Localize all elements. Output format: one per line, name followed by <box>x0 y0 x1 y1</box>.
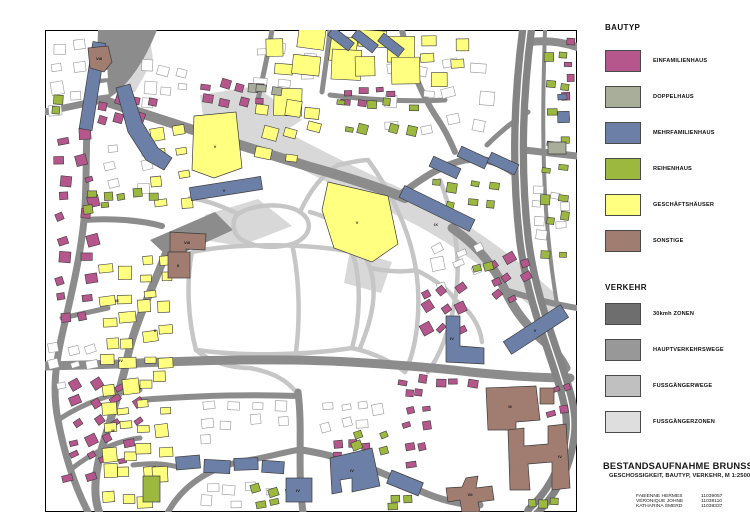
map-parcel <box>203 401 215 410</box>
map-building <box>118 467 129 477</box>
legend-label: DOPPELHAUS <box>653 94 694 100</box>
map-building <box>122 378 140 395</box>
map-building <box>219 98 230 107</box>
map-building <box>149 193 158 200</box>
city-map: VVIXVVIIIIIVIVIVIVIIIIVVIIVIIIIIIIVIIIII <box>45 30 577 512</box>
map-building <box>200 84 210 90</box>
map-building <box>558 195 568 202</box>
map-parcel <box>536 230 548 240</box>
map-building <box>102 491 115 503</box>
legend-label: SONSTIGE <box>653 238 684 244</box>
map-building <box>102 384 115 396</box>
title-block: BESTANDSAUFNAHME BRUNSSUM GESCHOSSIGKEIT… <box>603 461 748 479</box>
legend-swatch <box>605 50 641 72</box>
map-building <box>546 80 556 88</box>
legend-swatch <box>605 230 641 252</box>
map-building-landmark <box>175 455 200 470</box>
map-building <box>119 311 137 323</box>
map-parcel <box>47 342 58 353</box>
map-parcel <box>70 91 81 100</box>
map-building <box>85 273 98 284</box>
map-parcel <box>144 81 157 95</box>
map-parcel <box>556 221 567 228</box>
map-building <box>83 204 93 214</box>
map-building <box>486 200 494 208</box>
legend-label: REIHENHAUS <box>653 166 692 172</box>
map-building <box>274 63 293 75</box>
map-building <box>383 98 391 106</box>
map-building <box>540 195 550 205</box>
map-parcel <box>208 484 219 492</box>
floor-label: IV <box>296 488 300 493</box>
map-building <box>285 99 303 117</box>
map-building <box>409 105 418 111</box>
map-building <box>144 290 156 298</box>
map-building <box>285 154 297 162</box>
map-building <box>404 495 413 503</box>
map-building <box>77 312 86 321</box>
map-parcel <box>470 63 486 73</box>
map-parcel <box>178 83 187 89</box>
map-building <box>159 325 173 335</box>
map-building <box>422 406 430 411</box>
map-building <box>418 442 426 451</box>
credit-name: KATHARINA SMERD <box>636 504 701 509</box>
map-building <box>406 390 414 397</box>
map-building <box>468 379 479 388</box>
legend-label: 30kmh ZONEN <box>653 311 694 317</box>
credits: FABIENNE HERMES11039057VÉRONIQUE JOHNE11… <box>636 494 731 509</box>
map-building <box>292 54 321 76</box>
map-building <box>102 447 117 463</box>
map-building <box>123 495 135 504</box>
map-building <box>98 102 107 111</box>
map-parcel <box>108 145 118 153</box>
map-building <box>160 407 170 414</box>
map-parcel <box>231 501 241 508</box>
floor-label: IV <box>558 454 562 459</box>
map-parcel <box>532 200 541 207</box>
map-parcel <box>356 420 368 429</box>
map-building <box>436 379 446 387</box>
map-building <box>560 211 569 220</box>
map-building <box>344 90 352 96</box>
map-building <box>157 301 169 313</box>
map-building <box>544 53 554 62</box>
map-building <box>255 104 268 115</box>
map-building <box>559 164 569 170</box>
map-parcel <box>424 91 435 98</box>
floor-label: IV <box>350 468 354 473</box>
legend-swatch <box>605 411 641 433</box>
legend-heading-bautyp: BAUTYP <box>605 23 640 32</box>
map-building <box>137 399 148 407</box>
map-parcel <box>141 59 152 71</box>
map-building <box>99 295 116 306</box>
credit-row: KATHARINA SMERD11038337 <box>636 504 731 509</box>
map-parcel <box>278 416 288 425</box>
map-parcel <box>253 403 263 410</box>
map-building <box>137 299 150 312</box>
map-building <box>391 57 420 84</box>
map-building <box>567 38 575 45</box>
map-building <box>61 313 71 323</box>
map-building <box>104 463 118 477</box>
floor-label: V <box>534 328 537 333</box>
map-building <box>297 30 326 50</box>
map-parcel <box>342 404 352 411</box>
map-building <box>137 425 149 432</box>
map-building-landmark <box>548 142 566 154</box>
legend-label: EINFAMILIENHAUS <box>653 58 707 64</box>
map-parcel <box>47 358 59 369</box>
map-building <box>235 83 245 92</box>
map-building <box>406 125 417 136</box>
map-building-landmark <box>143 476 160 502</box>
map-building <box>542 168 551 174</box>
legend-heading-verkehr: VERKEHR <box>605 283 647 292</box>
map-parcel <box>323 402 334 409</box>
map-building <box>559 405 568 413</box>
map-parcel <box>534 216 544 226</box>
map-building <box>337 100 345 105</box>
floor-label: II <box>154 328 156 333</box>
map-building <box>256 98 264 104</box>
map-building <box>391 495 400 502</box>
map-building <box>150 176 161 187</box>
legend-label: FUSSGÄNGERWEGE <box>653 383 712 389</box>
map-parcel <box>222 485 235 495</box>
map-building <box>117 193 125 200</box>
map-building <box>159 447 173 457</box>
map-building <box>266 39 283 57</box>
floor-label: III <box>115 298 118 303</box>
map-building <box>143 256 153 265</box>
map-parcel <box>250 414 261 425</box>
map-building <box>120 339 132 349</box>
map-building <box>406 406 414 414</box>
legend-label: GESCHÄFTSHÄUSER <box>653 202 714 208</box>
legend-swatch <box>605 375 641 397</box>
map-building <box>59 251 71 263</box>
map-building <box>406 461 417 468</box>
floor-label: V <box>214 144 217 149</box>
legend-swatch <box>605 86 641 108</box>
map-building <box>334 440 343 448</box>
map-building <box>158 358 173 369</box>
legend-swatch <box>605 303 641 325</box>
floor-label: VIII <box>184 240 190 245</box>
map-parcel <box>220 421 231 429</box>
map-building <box>414 389 422 396</box>
map-parcel <box>358 401 368 409</box>
floor-label: IV <box>119 358 123 363</box>
map-building <box>117 295 131 304</box>
map-building <box>124 452 136 461</box>
map-building <box>388 503 398 510</box>
legend-label: HAUPTVERKEHRSWEGE <box>653 347 724 353</box>
map-building <box>120 421 132 429</box>
map-building <box>104 192 113 201</box>
map-building <box>420 53 434 62</box>
map-building <box>471 181 480 187</box>
map-building <box>359 88 368 94</box>
map-parcel <box>275 401 287 412</box>
map-building <box>154 423 168 437</box>
map-building <box>446 182 457 193</box>
map-building <box>387 91 395 97</box>
map-building-landmark <box>540 388 554 404</box>
map-building <box>81 253 92 261</box>
legend-label: MEHRFAMILIENHAUS <box>653 130 715 136</box>
map-building <box>98 264 113 274</box>
map-building <box>52 106 60 114</box>
map-building <box>140 275 151 282</box>
legend-swatch <box>605 158 641 180</box>
map-building <box>456 39 469 51</box>
map-building <box>75 154 88 167</box>
map-building <box>117 408 129 416</box>
map-building <box>136 443 151 454</box>
map-building <box>103 318 117 327</box>
map-parcel <box>73 39 85 50</box>
floor-label: III <box>508 404 511 409</box>
map-building <box>123 439 135 448</box>
map-building <box>560 252 567 257</box>
map-building <box>59 192 68 200</box>
map-building <box>405 442 415 450</box>
legend-label: FUSSGÄNGERZONEN <box>653 419 715 425</box>
map-building <box>82 294 93 301</box>
map-building <box>546 217 554 225</box>
map-building <box>541 251 551 259</box>
map-parcel <box>278 79 291 87</box>
map-building <box>153 371 165 382</box>
map-building-landmark <box>262 460 285 474</box>
map-building <box>118 266 131 279</box>
map-building <box>367 100 376 108</box>
map-title: BESTANDSAUFNAHME BRUNSSUM <box>603 461 748 471</box>
map-building <box>451 59 464 68</box>
map-building <box>148 98 157 107</box>
map-building <box>448 379 457 384</box>
map-building <box>539 500 548 508</box>
map-building <box>422 36 436 46</box>
map-building <box>558 94 567 100</box>
map-parcel <box>472 119 485 132</box>
map-building <box>256 501 267 509</box>
map-building <box>101 354 115 364</box>
map-building-landmark <box>192 112 242 178</box>
floor-label: V <box>223 188 226 193</box>
map-building <box>355 56 375 76</box>
map-building <box>431 73 447 87</box>
map-building <box>422 421 431 430</box>
map-parcel <box>430 256 445 271</box>
floor-label: VII <box>468 492 473 497</box>
map-parcel <box>479 91 495 106</box>
map-building-landmark <box>234 458 258 471</box>
city-map-svg: VVIXVVIIIIIVIVIVIVIIIIVVIIVIIIIIIIVIIIII <box>45 30 577 512</box>
map-building <box>547 109 557 116</box>
map-building <box>202 94 213 104</box>
map-building <box>468 199 478 206</box>
map-building <box>54 156 64 164</box>
map-building <box>101 202 109 208</box>
map-parcel <box>73 61 86 72</box>
floor-label: III <box>111 428 114 433</box>
map-parcel <box>533 186 543 194</box>
floor-label: IX <box>434 222 438 227</box>
map-parcel <box>160 87 171 95</box>
legend-swatch <box>605 339 641 361</box>
floor-label: VIII <box>96 56 102 61</box>
map-building <box>557 111 569 123</box>
map-building <box>376 87 383 92</box>
map-parcel <box>561 202 570 211</box>
map-building <box>272 87 283 96</box>
map-building <box>528 499 536 507</box>
map-building <box>432 179 440 185</box>
map-parcel <box>54 44 66 54</box>
map-building <box>418 374 427 383</box>
map-parcel <box>342 417 353 427</box>
map-building <box>172 124 185 135</box>
map-building <box>56 293 65 301</box>
map-building <box>145 357 156 363</box>
map-building <box>53 95 63 105</box>
map-building <box>345 127 353 133</box>
map-building <box>567 74 574 81</box>
map-building <box>133 188 142 197</box>
map-parcel <box>228 402 240 411</box>
map-parcel <box>50 81 65 96</box>
map-parcel <box>201 418 214 428</box>
map-building <box>178 170 190 179</box>
map-building <box>140 380 152 388</box>
map-building <box>256 84 267 92</box>
map-subtitle: GESCHOSSIGKEIT, BAUTYP, VERKEHR, M 1:250… <box>609 473 748 479</box>
map-building <box>561 83 570 90</box>
map-building-landmark <box>204 459 231 473</box>
floor-label: II <box>177 263 179 268</box>
map-building <box>358 100 367 107</box>
map-parcel <box>201 435 211 444</box>
map-building <box>357 123 369 135</box>
credit-id: 11038337 <box>701 504 731 509</box>
map-building <box>60 176 72 187</box>
map-parcel <box>371 403 384 415</box>
legend-swatch <box>605 122 641 144</box>
map-parcel <box>201 495 212 506</box>
map-building <box>304 107 320 119</box>
map-building <box>550 498 558 505</box>
map-building <box>102 402 118 415</box>
map-building <box>559 52 567 58</box>
map-building <box>88 191 97 197</box>
floor-label: V <box>356 220 359 225</box>
legend-swatch <box>605 194 641 216</box>
map-building <box>239 97 249 107</box>
map-building <box>388 123 399 134</box>
map-parcel <box>51 63 62 72</box>
map-building <box>564 62 571 67</box>
map-building <box>489 182 499 190</box>
map-building <box>107 338 119 349</box>
floor-label: IV <box>450 336 454 341</box>
map-building <box>176 147 187 155</box>
